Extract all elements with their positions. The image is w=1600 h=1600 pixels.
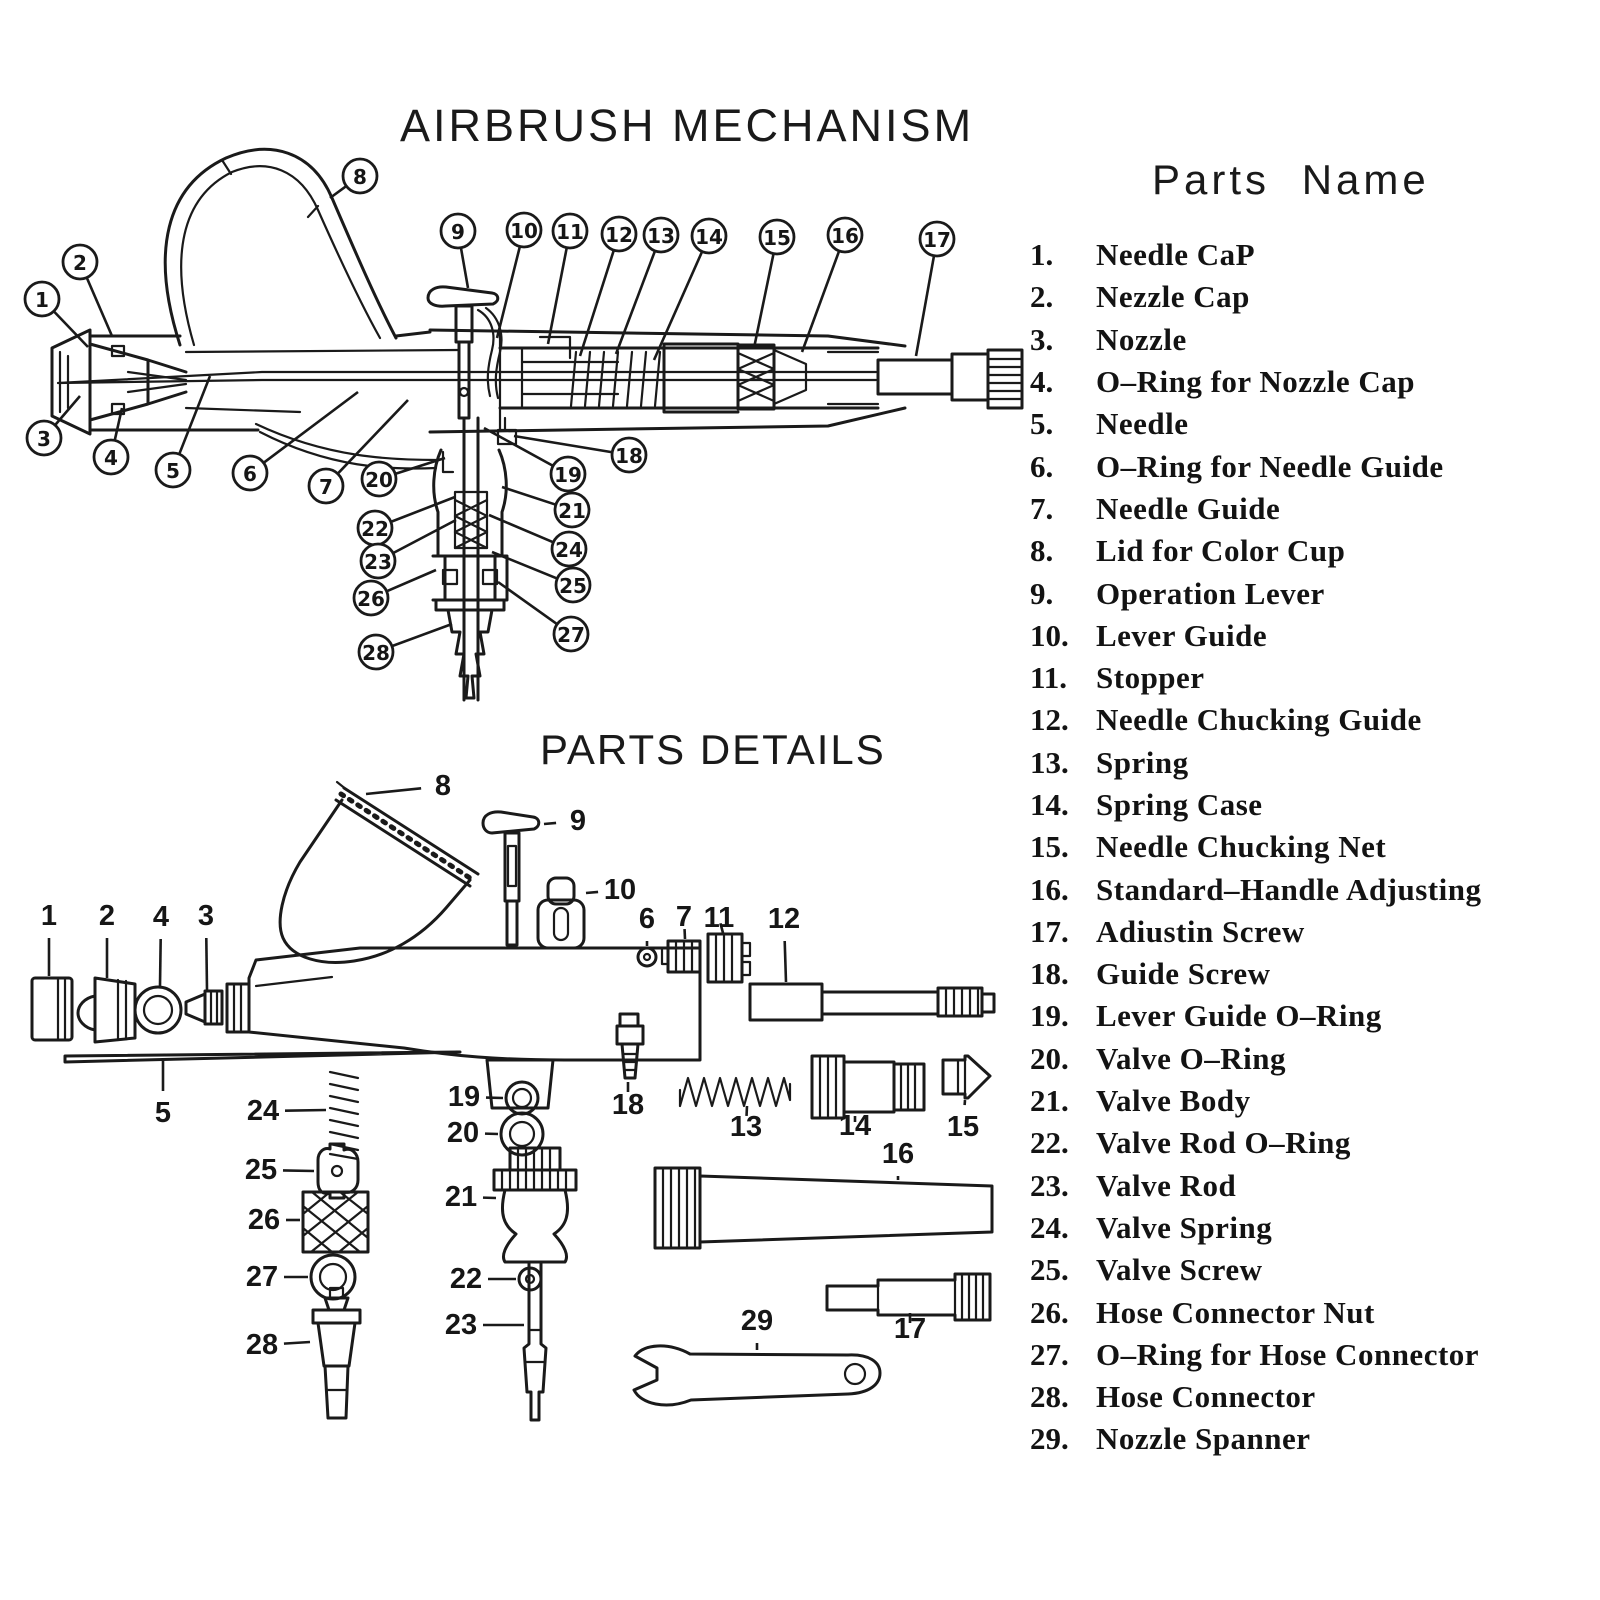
detail-label-13-number: 13 (730, 1111, 762, 1143)
detail-label-16-number: 16 (882, 1138, 914, 1170)
detail-label-6: 6 (639, 903, 655, 946)
callout-25-number: 25 (559, 574, 587, 598)
parts-list-item-11: 11.Stopper (1030, 657, 1590, 699)
parts-list-item-17: 17.Adiustin Screw (1030, 911, 1590, 953)
item-number: 22. (1030, 1125, 1096, 1161)
item-number: 5. (1030, 406, 1096, 442)
mech-spring (571, 344, 738, 412)
callout-21: 21 (502, 487, 589, 527)
callout-16-number: 16 (831, 224, 859, 248)
callout-17: 17 (916, 222, 954, 356)
detail-label-3: 3 (198, 900, 214, 990)
parts-list-item-26: 26.Hose Connector Nut (1030, 1291, 1590, 1333)
detail-label-20: 20 (447, 1117, 498, 1149)
callout-11: 11 (548, 214, 587, 344)
item-number: 11. (1030, 660, 1096, 696)
callout-19: 19 (484, 428, 585, 491)
det-part-6-oring (638, 948, 656, 966)
callout-1: 1 (25, 282, 88, 347)
detail-label-25-number: 25 (245, 1154, 277, 1186)
callout-13-number: 13 (647, 224, 675, 248)
callout-4-number: 4 (104, 446, 118, 470)
callout-10-leader-line (497, 246, 520, 338)
detail-label-12-number: 12 (768, 903, 800, 935)
item-name: Stopper (1096, 660, 1205, 696)
item-number: 8. (1030, 533, 1096, 569)
item-number: 14. (1030, 787, 1096, 823)
parts-list-item-2: 2.Nezzle Cap (1030, 276, 1590, 318)
detail-label-11: 11 (704, 902, 735, 934)
callout-7-number: 7 (319, 475, 333, 499)
det-part-14-spring-case (812, 1056, 924, 1118)
callout-23-leader-line (393, 520, 456, 553)
callout-17-leader-line (916, 256, 934, 356)
detail-label-22-number: 22 (450, 1263, 482, 1295)
item-name: Needle Guide (1096, 491, 1280, 527)
detail-label-7: 7 (676, 901, 692, 939)
item-name: O–Ring for Hose Connector (1096, 1337, 1479, 1373)
det-part-7-needle-guide (662, 941, 700, 972)
detail-label-6-number: 6 (639, 903, 655, 935)
callout-2-number: 2 (73, 251, 87, 275)
det-part-15-chucking-net (943, 1056, 990, 1098)
det-part-5-needle (65, 1052, 460, 1062)
callout-5-number: 5 (166, 459, 180, 483)
det-part-25-valve-screw (318, 1144, 358, 1198)
det-part-23-valve-rod (524, 1262, 546, 1420)
callout-10-number: 10 (510, 219, 538, 243)
item-number: 25. (1030, 1252, 1096, 1288)
item-number: 1. (1030, 237, 1096, 273)
item-name: O–Ring for Nozzle Cap (1096, 364, 1415, 400)
detail-label-11-number: 11 (704, 902, 735, 934)
detail-label-27: 27 (246, 1261, 308, 1293)
parts-list-item-12: 12.Needle Chucking Guide (1030, 699, 1590, 741)
callout-15-number: 15 (763, 226, 791, 250)
callout-27-number: 27 (557, 623, 585, 647)
item-name: Nozzle (1096, 322, 1187, 358)
mech-chucking-net (738, 345, 806, 409)
callout-22-number: 22 (361, 517, 389, 541)
parts-list-item-8: 8.Lid for Color Cup (1030, 530, 1590, 572)
callout-22-leader-line (391, 497, 455, 522)
item-name: Needle Chucking Net (1096, 829, 1386, 865)
det-part-21-valve-body (494, 1148, 576, 1262)
item-name: Standard–Handle Adjusting (1096, 872, 1481, 908)
item-number: 4. (1030, 364, 1096, 400)
callout-23-number: 23 (364, 550, 392, 574)
callout-25-leader-line (492, 552, 557, 579)
item-name: Needle CaP (1096, 237, 1255, 273)
item-name: Valve O–Ring (1096, 1041, 1286, 1077)
detail-label-18-number: 18 (612, 1089, 644, 1121)
detail-label-8-leader-line (366, 788, 421, 794)
detail-label-28-leader-line (284, 1342, 310, 1344)
item-name: Valve Rod O–Ring (1096, 1125, 1351, 1161)
detail-label-9-leader-line (544, 823, 556, 824)
item-number: 13. (1030, 745, 1096, 781)
callout-1-number: 1 (35, 288, 49, 312)
callout-9: 9 (441, 214, 475, 288)
detail-label-25-leader-line (283, 1170, 314, 1171)
detail-label-7-number: 7 (676, 901, 692, 933)
detail-label-9: 9 (544, 805, 586, 837)
callout-21-leader-line (502, 487, 556, 505)
callout-28-leader-line (392, 624, 452, 646)
detail-label-28-number: 28 (246, 1329, 278, 1361)
detail-label-10-leader-line (586, 892, 598, 893)
parts-list-item-22: 22.Valve Rod O–Ring (1030, 1122, 1590, 1164)
detail-label-14-number: 14 (839, 1110, 871, 1142)
detail-label-9-number: 9 (570, 805, 586, 837)
det-part-11-stopper (708, 934, 750, 982)
item-number: 15. (1030, 829, 1096, 865)
det-part-4-oring (135, 987, 181, 1033)
item-name: Spring (1096, 745, 1189, 781)
callout-5-leader-line (179, 376, 210, 454)
detail-label-23-number: 23 (445, 1309, 477, 1341)
item-number: 2. (1030, 279, 1096, 315)
detail-label-19-number: 19 (448, 1081, 480, 1113)
item-number: 7. (1030, 491, 1096, 527)
detail-label-14: 14 (839, 1110, 871, 1142)
callout-13-leader-line (616, 251, 655, 354)
item-number: 6. (1030, 449, 1096, 485)
callout-2: 2 (63, 245, 112, 336)
detail-label-24-number: 24 (247, 1095, 279, 1127)
detail-label-4-number: 4 (153, 901, 169, 933)
det-part-18-guide-screw (617, 1014, 643, 1078)
det-part-27-oring (311, 1255, 355, 1299)
callout-15: 15 (754, 220, 794, 348)
parts-list-item-10: 10.Lever Guide (1030, 615, 1590, 657)
detail-label-21-number: 21 (445, 1181, 477, 1213)
item-number: 9. (1030, 576, 1096, 612)
callout-24-leader-line (489, 515, 553, 542)
callout-8-leader-line (330, 186, 346, 198)
item-name: Hose Connector (1096, 1379, 1316, 1415)
item-name: Needle (1096, 406, 1189, 442)
item-name: Nezzle Cap (1096, 279, 1250, 315)
parts-list-item-21: 21.Valve Body (1030, 1080, 1590, 1122)
item-number: 16. (1030, 872, 1096, 908)
callout-18-leader-line (514, 436, 612, 452)
det-part-26-hose-connector-nut (303, 1192, 368, 1252)
item-number: 18. (1030, 956, 1096, 992)
item-number: 29. (1030, 1421, 1096, 1457)
item-number: 12. (1030, 702, 1096, 738)
callout-12-number: 12 (605, 223, 633, 247)
item-number: 23. (1030, 1168, 1096, 1204)
callout-21-number: 21 (558, 499, 586, 523)
det-part-1-needle-cap (32, 978, 72, 1040)
callout-20-number: 20 (365, 468, 393, 492)
det-part-29-nozzle-spanner (634, 1346, 880, 1405)
item-number: 3. (1030, 322, 1096, 358)
item-name: Guide Screw (1096, 956, 1271, 992)
detail-label-27-number: 27 (246, 1261, 278, 1293)
parts-list-item-19: 19.Lever Guide O–Ring (1030, 995, 1590, 1037)
detail-label-26-number: 26 (248, 1204, 280, 1236)
detail-label-22: 22 (450, 1263, 516, 1295)
item-number: 28. (1030, 1379, 1096, 1415)
item-number: 19. (1030, 998, 1096, 1034)
item-number: 21. (1030, 1083, 1096, 1119)
callout-11-leader-line (548, 248, 567, 344)
parts-list-item-28: 28.Hose Connector (1030, 1376, 1590, 1418)
detail-label-2: 2 (99, 900, 115, 978)
callout-19-leader-line (484, 428, 553, 466)
det-part-9-operation-lever (483, 812, 539, 945)
callout-9-leader-line (461, 248, 468, 288)
detail-label-29-number: 29 (741, 1305, 773, 1337)
detail-label-17: 17 (894, 1313, 926, 1345)
item-name: Valve Rod (1096, 1168, 1236, 1204)
parts-list-item-27: 27.O–Ring for Hose Connector (1030, 1334, 1590, 1376)
detail-label-26: 26 (248, 1204, 300, 1236)
parts-list-item-18: 18.Guide Screw (1030, 953, 1590, 995)
parts-list-item-20: 20.Valve O–Ring (1030, 1038, 1590, 1080)
det-part-16-handle (655, 1168, 992, 1248)
det-part-3-nozzle (186, 991, 222, 1024)
callout-12: 12 (580, 217, 636, 356)
item-name: Lever Guide (1096, 618, 1267, 654)
det-part-2-nozzle-cap (78, 978, 135, 1042)
detail-label-3-number: 3 (198, 900, 214, 932)
callout-26-number: 26 (357, 587, 385, 611)
detail-label-24-leader-line (285, 1110, 326, 1111)
detail-label-5: 5 (155, 1058, 171, 1129)
item-name: Hose Connector Nut (1096, 1295, 1375, 1331)
item-name: Nozzle Spanner (1096, 1421, 1311, 1457)
det-part-10-lever-guide (538, 878, 584, 948)
mech-valve-assembly (433, 418, 507, 700)
callout-10: 10 (497, 213, 541, 338)
item-name: Spring Case (1096, 787, 1263, 823)
detail-label-1-number: 1 (41, 900, 57, 932)
detail-label-8: 8 (366, 770, 451, 802)
callout-17-number: 17 (923, 228, 951, 252)
parts-list-item-29: 29.Nozzle Spanner (1030, 1418, 1590, 1460)
parts-list-item-23: 23.Valve Rod (1030, 1165, 1590, 1207)
item-name: Needle Chucking Guide (1096, 702, 1422, 738)
detail-label-10-number: 10 (604, 874, 636, 906)
callout-16: 16 (802, 218, 862, 352)
manual-page: AIRBRUSH MECHANISM PARTS DETAILS Parts N… (0, 0, 1600, 1600)
callout-14-number: 14 (695, 225, 723, 249)
parts-list: 1.Needle CaP2.Nezzle Cap3.Nozzle4.O–Ring… (1030, 234, 1590, 1461)
callout-28: 28 (359, 624, 452, 669)
callout-26-leader-line (387, 570, 436, 591)
detail-label-21: 21 (445, 1181, 496, 1213)
callout-11-number: 11 (556, 220, 584, 244)
callout-8-number: 8 (353, 165, 367, 189)
parts-list-item-25: 25.Valve Screw (1030, 1249, 1590, 1291)
item-number: 10. (1030, 618, 1096, 654)
detail-label-5-number: 5 (155, 1097, 171, 1129)
callout-12-leader-line (580, 250, 614, 356)
parts-list-item-4: 4.O–Ring for Nozzle Cap (1030, 361, 1590, 403)
detail-label-4: 4 (153, 901, 169, 986)
callout-19-number: 19 (554, 463, 582, 487)
detail-label-1: 1 (41, 900, 57, 976)
det-part-28-hose-connector (313, 1288, 360, 1418)
mech-body-front (90, 332, 458, 469)
detail-label-2-number: 2 (99, 900, 115, 932)
detail-label-25: 25 (245, 1154, 314, 1186)
callout-9-number: 9 (451, 220, 465, 244)
callout-18-number: 18 (615, 444, 643, 468)
item-name: Lever Guide O–Ring (1096, 998, 1382, 1034)
parts-list-item-5: 5.Needle (1030, 403, 1590, 445)
parts-list-item-9: 9.Operation Lever (1030, 572, 1590, 614)
detail-label-3-leader-line (206, 938, 207, 990)
mech-operation-lever (428, 287, 501, 418)
detail-label-15-number: 15 (947, 1111, 979, 1143)
detail-label-10: 10 (586, 874, 636, 906)
item-name: Valve Body (1096, 1083, 1251, 1119)
detail-label-15: 15 (947, 1100, 979, 1143)
parts-list-item-1: 1.Needle CaP (1030, 234, 1590, 276)
parts-list-item-15: 15.Needle Chucking Net (1030, 826, 1590, 868)
det-part-8-color-cup-lid (280, 782, 478, 962)
callout-1-leader-line (54, 311, 88, 347)
detail-label-12-leader-line (785, 941, 786, 982)
detail-label-23: 23 (445, 1309, 524, 1341)
callout-28-number: 28 (362, 641, 390, 665)
detail-label-16: 16 (882, 1138, 914, 1180)
item-number: 26. (1030, 1295, 1096, 1331)
details-label-layer: 1243891067111252425262728192021222318131… (41, 770, 979, 1361)
detail-label-8-number: 8 (435, 770, 451, 802)
parts-list-item-14: 14.Spring Case (1030, 784, 1590, 826)
detail-label-4-leader-line (160, 939, 161, 986)
detail-label-28: 28 (246, 1329, 310, 1361)
parts-list-item-3: 3.Nozzle (1030, 319, 1590, 361)
parts-list-item-6: 6.O–Ring for Needle Guide (1030, 445, 1590, 487)
detail-label-24: 24 (247, 1095, 326, 1127)
item-name: Adiustin Screw (1096, 914, 1305, 950)
detail-label-17-number: 17 (894, 1313, 926, 1345)
item-name: Operation Lever (1096, 576, 1325, 612)
detail-label-20-number: 20 (447, 1117, 479, 1149)
callout-3-number: 3 (37, 427, 51, 451)
item-number: 17. (1030, 914, 1096, 950)
callout-24-number: 24 (555, 538, 583, 562)
mechanism-callout-layer: 1234567891011121314151617181920212223242… (25, 159, 954, 669)
item-name: Valve Screw (1096, 1252, 1263, 1288)
item-number: 20. (1030, 1041, 1096, 1077)
callout-27-leader-line (498, 582, 557, 624)
item-number: 27. (1030, 1337, 1096, 1373)
detail-label-12: 12 (768, 903, 800, 982)
parts-list-item-13: 13.Spring (1030, 742, 1590, 784)
parts-list-item-16: 16.Standard–Handle Adjusting (1030, 868, 1590, 910)
detail-label-13: 13 (730, 1106, 762, 1143)
det-part-13-spring (680, 1078, 790, 1106)
item-name: O–Ring for Needle Guide (1096, 449, 1444, 485)
callout-2-leader-line (87, 278, 112, 336)
item-name: Lid for Color Cup (1096, 533, 1345, 569)
item-name: Valve Spring (1096, 1210, 1272, 1246)
detail-label-18: 18 (612, 1082, 644, 1121)
parts-list-item-24: 24.Valve Spring (1030, 1207, 1590, 1249)
callout-6-number: 6 (243, 462, 257, 486)
callout-8: 8 (330, 159, 377, 198)
parts-list-item-7: 7.Needle Guide (1030, 488, 1590, 530)
det-part-12-chucking-guide (750, 984, 994, 1020)
callout-22: 22 (358, 497, 455, 545)
item-number: 24. (1030, 1210, 1096, 1246)
detail-label-29: 29 (741, 1305, 773, 1350)
callout-26: 26 (354, 570, 436, 615)
